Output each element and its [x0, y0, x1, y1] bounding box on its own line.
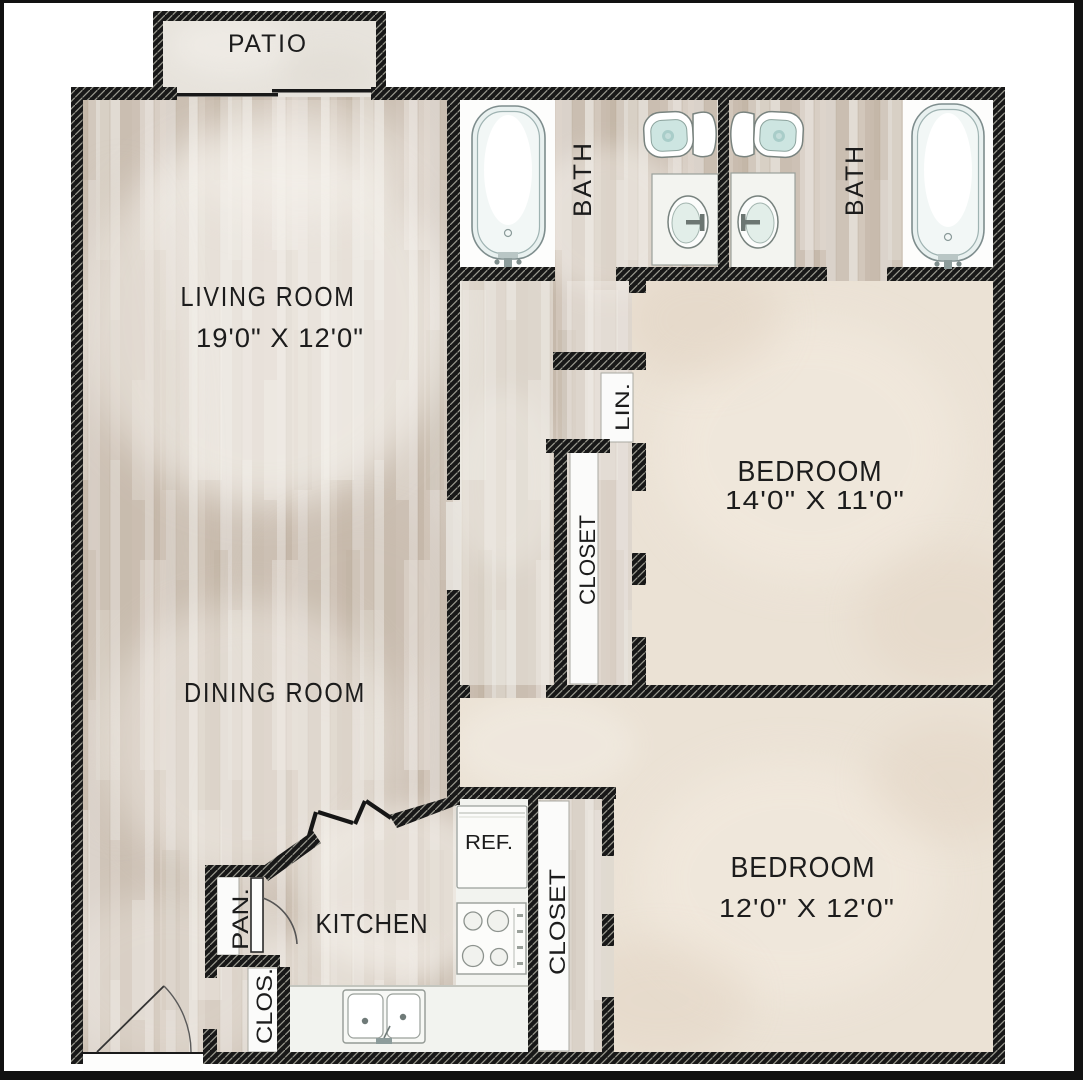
svg-text:19'0" X 12'0": 19'0" X 12'0" — [196, 323, 364, 353]
svg-text:KITCHEN: KITCHEN — [316, 908, 429, 939]
svg-text:BATH: BATH — [569, 141, 597, 217]
svg-text:CLOSET: CLOSET — [545, 869, 570, 975]
svg-text:PAN.: PAN. — [228, 888, 253, 950]
svg-text:CLOSET: CLOSET — [575, 515, 600, 605]
svg-text:BEDROOM: BEDROOM — [731, 852, 876, 884]
svg-text:12'0" X 12'0": 12'0" X 12'0" — [719, 893, 895, 923]
svg-text:CLOS.: CLOS. — [252, 968, 277, 1044]
svg-text:LIN.: LIN. — [613, 383, 634, 431]
svg-text:14'0" X 11'0": 14'0" X 11'0" — [725, 485, 905, 515]
svg-text:BEDROOM: BEDROOM — [738, 456, 883, 488]
svg-text:BATH: BATH — [841, 144, 869, 216]
svg-text:LIVING ROOM: LIVING ROOM — [181, 281, 356, 312]
svg-text:DINING ROOM: DINING ROOM — [184, 677, 366, 708]
svg-text:REF.: REF. — [465, 832, 513, 854]
svg-text:PATIO: PATIO — [228, 30, 308, 58]
